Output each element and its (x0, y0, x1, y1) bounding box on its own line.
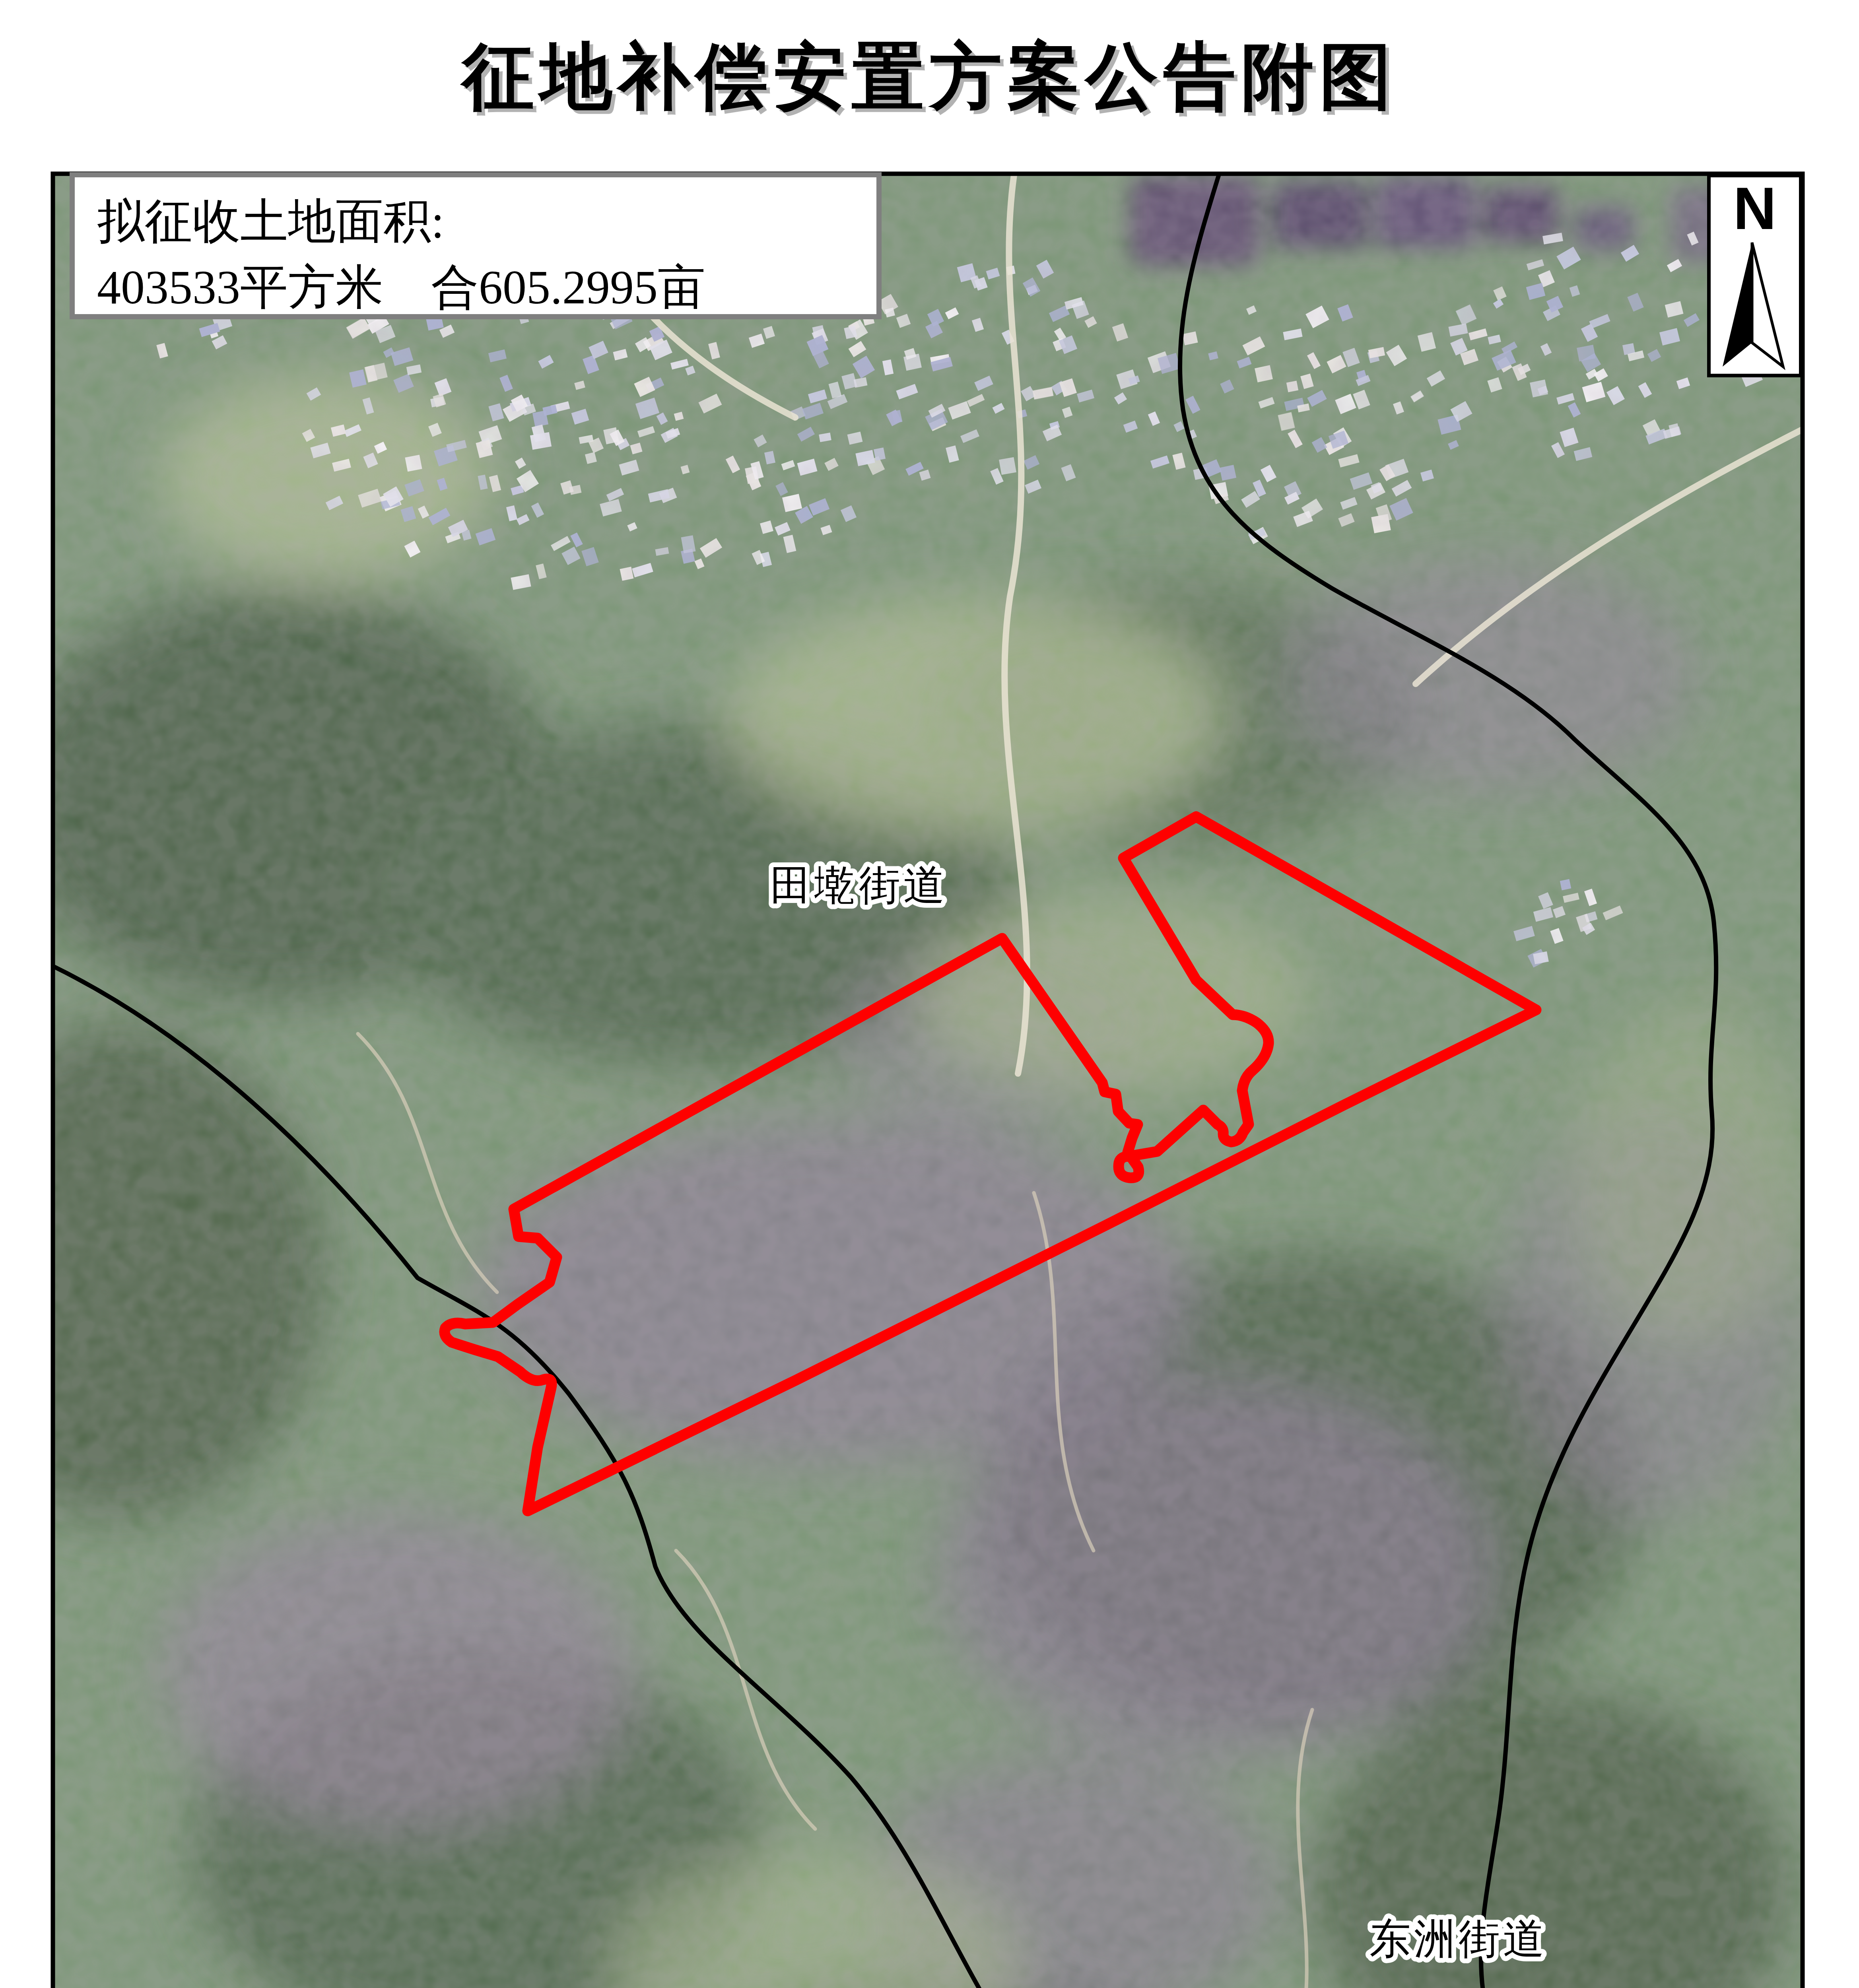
tianqian-street-label: 田墘街道 (770, 862, 948, 908)
satellite-imagery: 田墘街道 东洲街道 (0, 174, 1859, 1988)
info-line-area-value: 403533平方米 合605.2995亩 (97, 254, 876, 320)
info-line-area-label: 拟征收土地面积: (97, 188, 876, 254)
acquisition-area-info-box: 拟征收土地面积: 403533平方米 合605.2995亩 (70, 172, 882, 319)
dongzhou-street-label: 东洲街道 (1369, 1916, 1548, 1962)
announcement-map-page: 田墘街道 东洲街道 征地补偿安置方案公告附图 拟征收土地面积: 403533平方… (0, 0, 1859, 1988)
north-label: N (1711, 177, 1799, 240)
north-arrow-icon (1711, 240, 1799, 371)
north-arrow: N (1707, 174, 1803, 377)
page-title: 征地补偿安置方案公告附图 (0, 29, 1859, 126)
